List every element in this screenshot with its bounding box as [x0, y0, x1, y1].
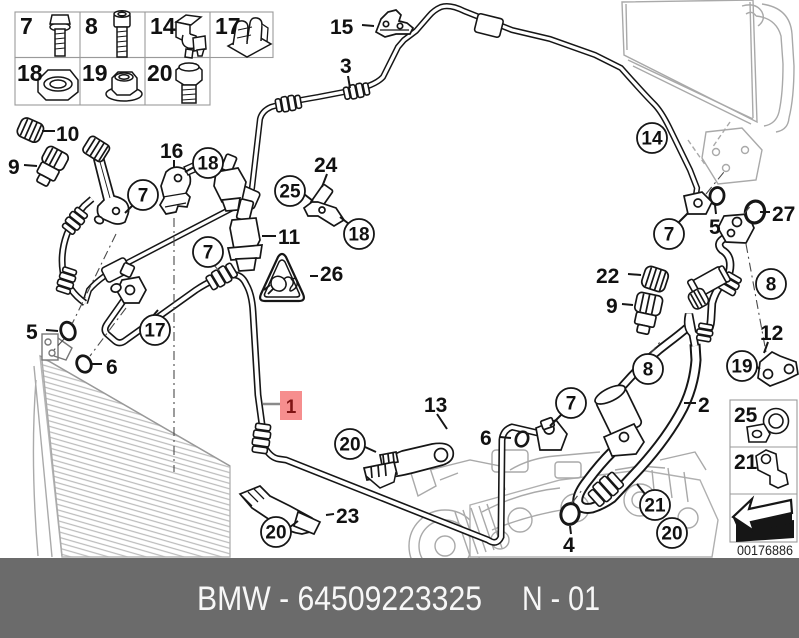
svg-text:00176886: 00176886: [737, 543, 793, 558]
svg-text:7: 7: [566, 394, 577, 415]
svg-text:5: 5: [709, 216, 721, 239]
svg-text:10: 10: [56, 123, 79, 146]
svg-text:27: 27: [772, 203, 795, 226]
svg-text:19: 19: [82, 60, 108, 86]
svg-text:7: 7: [203, 243, 214, 264]
svg-text:7: 7: [20, 13, 33, 39]
svg-text:20: 20: [265, 523, 286, 544]
svg-text:21: 21: [734, 451, 758, 474]
svg-text:7: 7: [138, 186, 149, 207]
svg-text:N - 01: N - 01: [522, 580, 600, 618]
svg-text:12: 12: [760, 322, 783, 345]
svg-text:20: 20: [339, 435, 360, 456]
svg-text:19: 19: [731, 357, 752, 378]
svg-text:26: 26: [320, 263, 343, 286]
svg-text:6: 6: [480, 427, 492, 450]
svg-text:18: 18: [197, 154, 218, 175]
svg-text:25: 25: [279, 182, 301, 203]
svg-text:5: 5: [26, 321, 38, 344]
svg-text:22: 22: [596, 265, 619, 288]
svg-text:8: 8: [85, 13, 98, 39]
svg-text:17: 17: [144, 321, 165, 342]
svg-text:25: 25: [734, 404, 758, 427]
svg-text:18: 18: [17, 60, 43, 86]
svg-text:16: 16: [160, 140, 183, 163]
svg-text:2: 2: [698, 394, 710, 417]
svg-text:15: 15: [330, 16, 354, 39]
svg-text:9: 9: [606, 295, 618, 318]
svg-text:18: 18: [348, 225, 369, 246]
svg-text:BMW - 64509223325: BMW - 64509223325: [197, 580, 482, 618]
svg-text:8: 8: [643, 360, 654, 381]
svg-text:9: 9: [8, 156, 20, 179]
svg-text:11: 11: [278, 226, 301, 249]
svg-text:24: 24: [314, 154, 338, 177]
svg-text:20: 20: [661, 524, 682, 545]
svg-text:3: 3: [340, 55, 352, 78]
svg-text:8: 8: [766, 275, 777, 296]
svg-text:13: 13: [424, 394, 447, 417]
svg-text:4: 4: [563, 534, 575, 557]
svg-text:7: 7: [664, 225, 675, 246]
svg-text:1: 1: [286, 397, 297, 418]
svg-text:20: 20: [147, 60, 173, 86]
svg-text:17: 17: [215, 13, 241, 39]
svg-text:23: 23: [336, 505, 359, 528]
svg-text:14: 14: [641, 129, 663, 150]
svg-text:6: 6: [106, 356, 118, 379]
svg-text:21: 21: [644, 496, 666, 517]
svg-text:14: 14: [150, 13, 176, 39]
